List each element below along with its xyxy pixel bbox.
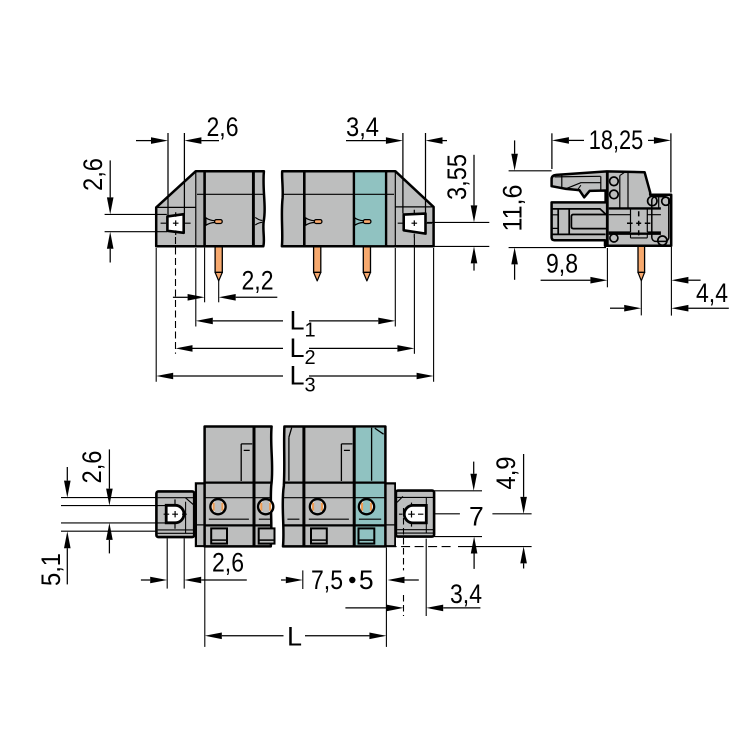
svg-text:3,55: 3,55 xyxy=(442,154,472,200)
svg-text:2,6: 2,6 xyxy=(212,547,244,577)
svg-text:7,5: 7,5 xyxy=(311,565,343,595)
svg-text:L: L xyxy=(287,621,302,651)
svg-text:2,6: 2,6 xyxy=(77,451,107,484)
svg-text:3,4: 3,4 xyxy=(346,112,379,142)
svg-text:4,9: 4,9 xyxy=(491,457,521,490)
svg-text:5,1: 5,1 xyxy=(36,553,66,586)
svg-text:2,6: 2,6 xyxy=(207,112,239,142)
svg-text:11,6: 11,6 xyxy=(498,185,528,232)
svg-text:18,25: 18,25 xyxy=(589,125,644,155)
svg-text:4,4: 4,4 xyxy=(696,278,728,308)
svg-text:3,4: 3,4 xyxy=(450,579,482,609)
svg-text:7: 7 xyxy=(469,501,484,531)
svg-text:9,8: 9,8 xyxy=(546,249,578,279)
svg-text:2,6: 2,6 xyxy=(78,158,108,191)
svg-text:2,2: 2,2 xyxy=(242,265,274,295)
svg-text:5: 5 xyxy=(359,565,374,595)
